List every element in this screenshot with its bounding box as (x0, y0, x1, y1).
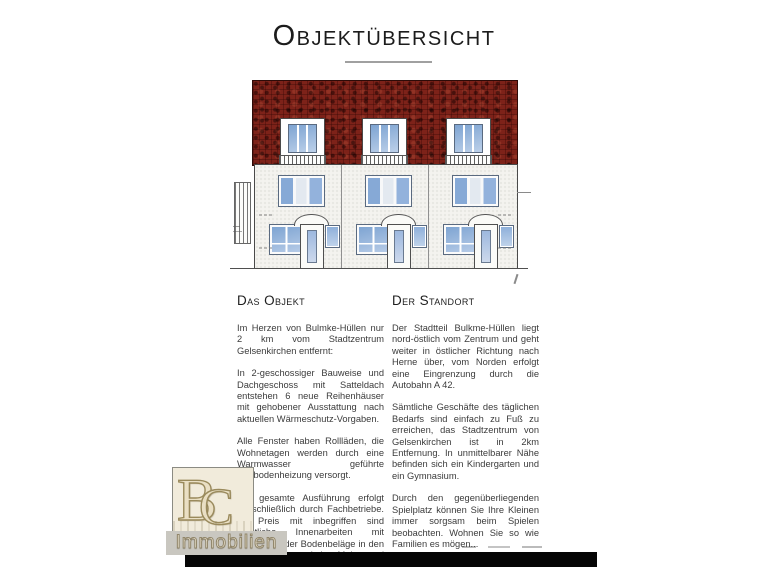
side-window (326, 226, 339, 247)
ground-window (444, 225, 477, 254)
entrance-door (300, 224, 324, 269)
dormer-window (280, 118, 325, 158)
ground-window (357, 225, 390, 254)
dormer-window (362, 118, 407, 158)
dimension-mark (498, 214, 512, 216)
house-unit (429, 165, 516, 268)
side-window (413, 226, 426, 247)
house-unit (255, 165, 342, 268)
watermark-label: Immobilien (166, 531, 287, 555)
dimension-mark (498, 247, 512, 249)
side-window (500, 226, 513, 247)
faded-text-remnant (462, 546, 542, 548)
trellis (234, 182, 251, 244)
dormer-glass (288, 124, 317, 153)
ground-line (230, 268, 528, 269)
hand-annotation (233, 224, 243, 234)
door-glass (481, 230, 491, 263)
page-title: Objektübersicht (0, 20, 768, 53)
building-elevation-drawing (228, 78, 528, 293)
house-unit (342, 165, 429, 268)
paragraph: Sämtliche Geschäfte des täglichen Bedarf… (392, 402, 539, 482)
paragraph: Im Herzen von Bulmke-Hüllen nur 2 km vom… (237, 323, 384, 357)
title-underline (345, 61, 432, 63)
entrance-door (474, 224, 498, 269)
section-der-standort: Der Standort Der Stadtteil Bulkme-Hüllen… (392, 293, 539, 561)
dormer-glass (370, 124, 399, 153)
document-page: Objektübersicht (0, 0, 768, 567)
section-heading-object: Das Objekt (237, 293, 384, 308)
door-glass (394, 230, 404, 263)
dimension-mark (259, 214, 273, 216)
dimension-tick (514, 274, 519, 284)
paragraph: In 2-geschossiger Bauweise und Dachgesch… (237, 368, 384, 425)
entrance-door (387, 224, 411, 269)
dimension-mark (259, 247, 273, 249)
dormer-glass (454, 124, 483, 153)
upper-window (453, 176, 498, 206)
dormer-window (446, 118, 491, 158)
section-das-objekt: Das Objekt Im Herzen von Bulmke-Hüllen n… (237, 293, 384, 567)
paragraph: Der Stadtteil Bulkme-Hüllen liegt nord-ö… (392, 323, 539, 391)
section-heading-location: Der Standort (392, 293, 539, 308)
upper-window (279, 176, 324, 206)
paragraph: Durch den gegenüberliegenden Spielplatz … (392, 493, 539, 550)
facade (254, 164, 518, 269)
door-glass (307, 230, 317, 263)
ground-window (270, 225, 303, 254)
upper-window (366, 176, 411, 206)
paragraph: Alle Fenster haben Rollläden, die Wohnet… (237, 436, 384, 482)
dimension-line (517, 192, 531, 193)
